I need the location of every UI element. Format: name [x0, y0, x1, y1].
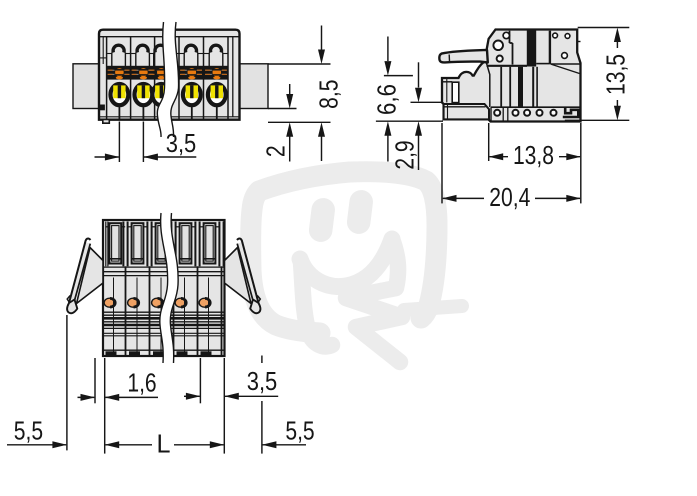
- svg-text:3,5: 3,5: [247, 366, 278, 396]
- svg-text:1,6: 1,6: [127, 367, 156, 397]
- svg-text:2,9: 2,9: [389, 140, 419, 169]
- svg-text:13,5: 13,5: [601, 54, 631, 95]
- svg-text:13,8: 13,8: [513, 140, 554, 170]
- svg-text:L: L: [157, 429, 171, 459]
- svg-text:2: 2: [260, 145, 290, 157]
- svg-text:5,5: 5,5: [14, 415, 43, 445]
- svg-text:5,5: 5,5: [285, 415, 314, 445]
- svg-text:6,6: 6,6: [372, 84, 402, 115]
- svg-text:3,5: 3,5: [166, 128, 197, 158]
- svg-text:8,5: 8,5: [313, 80, 343, 109]
- svg-text:20,4: 20,4: [489, 182, 530, 212]
